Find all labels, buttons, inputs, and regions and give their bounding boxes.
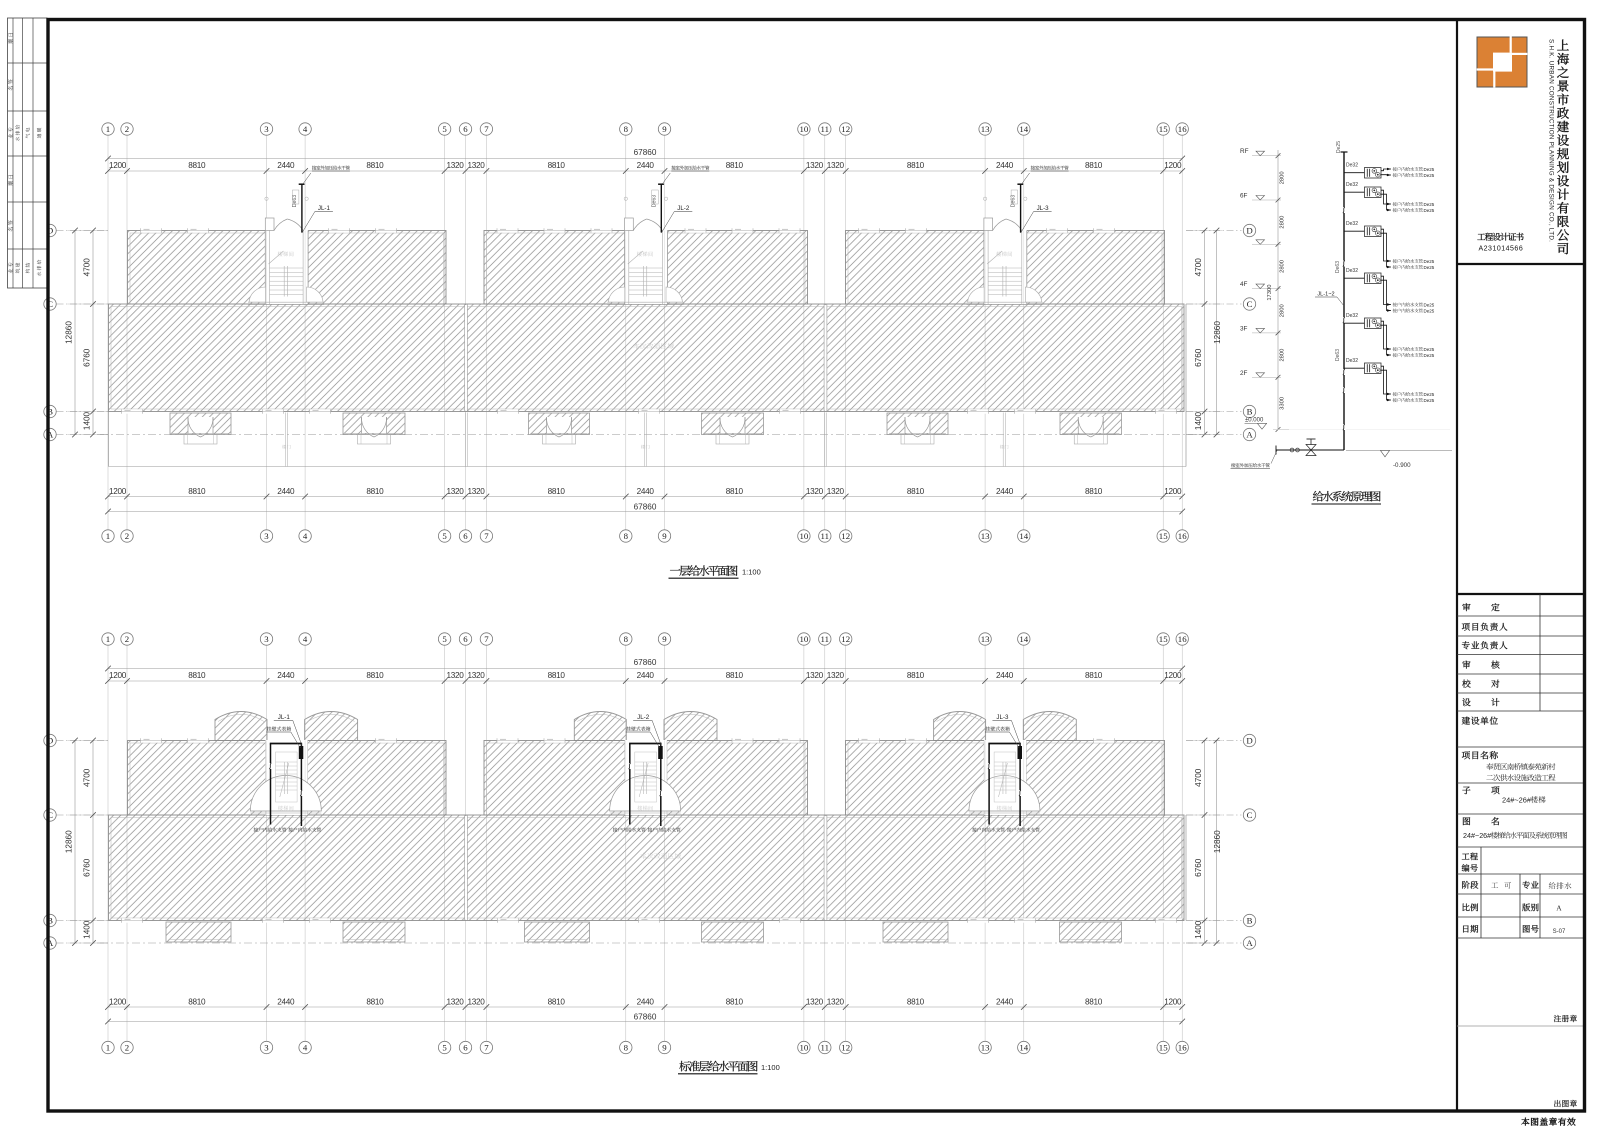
svg-text:B: B: [1247, 916, 1253, 926]
svg-text:1320: 1320: [447, 161, 465, 170]
svg-text:10: 10: [800, 1043, 809, 1053]
svg-text:24#~26#: 24#~26#: [1502, 796, 1532, 805]
svg-text:De25: De25: [1424, 173, 1435, 178]
svg-text:2F: 2F: [1240, 370, 1248, 377]
svg-text:4: 4: [303, 634, 308, 644]
svg-text:±0.000: ±0.000: [1245, 418, 1264, 424]
svg-text:C: C: [1247, 810, 1253, 820]
svg-text:8810: 8810: [188, 487, 206, 496]
svg-text:JL-2: JL-2: [677, 205, 690, 212]
svg-text:8: 8: [624, 1043, 629, 1053]
svg-text:6: 6: [463, 531, 468, 541]
svg-text:2800: 2800: [1280, 171, 1286, 184]
svg-text:7: 7: [484, 1043, 489, 1053]
svg-text:S-07: S-07: [1553, 929, 1566, 935]
svg-text:8810: 8810: [726, 671, 744, 680]
svg-text:1320: 1320: [827, 998, 845, 1007]
svg-text:1: 1: [106, 1043, 110, 1053]
svg-text:De25: De25: [1424, 167, 1435, 172]
svg-text:12: 12: [841, 124, 850, 134]
svg-text:16: 16: [1178, 531, 1187, 541]
svg-text:D: D: [1246, 226, 1252, 236]
svg-text:2440: 2440: [277, 998, 295, 1007]
svg-text:De32: De32: [1346, 313, 1358, 319]
svg-text:12860: 12860: [65, 321, 74, 344]
svg-text:1400: 1400: [1194, 920, 1203, 939]
svg-text:De63: De63: [651, 195, 657, 208]
svg-text:8810: 8810: [548, 487, 566, 496]
svg-text:11: 11: [821, 531, 829, 541]
svg-text:De25: De25: [1424, 302, 1435, 307]
svg-text:15: 15: [1159, 634, 1168, 644]
svg-text:De25: De25: [1424, 202, 1435, 207]
svg-text:2440: 2440: [996, 671, 1014, 680]
svg-text:1320: 1320: [467, 671, 485, 680]
svg-text:JL-2: JL-2: [637, 714, 650, 721]
svg-text:24#~26#: 24#~26#: [1463, 831, 1491, 840]
svg-text:14: 14: [1019, 531, 1028, 541]
svg-text:6760: 6760: [83, 348, 92, 367]
svg-text:15: 15: [1159, 124, 1168, 134]
svg-text:1200: 1200: [1164, 161, 1182, 170]
svg-text:A: A: [1246, 938, 1253, 948]
svg-text:2440: 2440: [637, 671, 655, 680]
svg-text:1200: 1200: [109, 161, 127, 170]
svg-text:67860: 67860: [634, 503, 657, 512]
svg-text:6760: 6760: [83, 858, 92, 877]
svg-text:9: 9: [662, 1043, 667, 1053]
svg-text:S.H.K. URBAN CONSTRUCTION PLAN: S.H.K. URBAN CONSTRUCTION PLANNING & DES…: [1548, 39, 1555, 242]
svg-text:3: 3: [264, 1043, 269, 1053]
svg-text:JL-1~2: JL-1~2: [1317, 292, 1334, 298]
svg-text:1200: 1200: [1164, 998, 1182, 1007]
svg-text:1200: 1200: [1164, 671, 1182, 680]
svg-text:16: 16: [1178, 634, 1187, 644]
svg-text:2: 2: [125, 531, 129, 541]
svg-text:2440: 2440: [637, 161, 655, 170]
svg-text:De25: De25: [1424, 308, 1435, 313]
svg-text:De25: De25: [1424, 353, 1435, 358]
svg-text:2440: 2440: [996, 998, 1014, 1007]
svg-text:5: 5: [442, 531, 447, 541]
svg-text:8810: 8810: [907, 161, 925, 170]
svg-text:12: 12: [841, 531, 850, 541]
svg-text:14: 14: [1019, 124, 1028, 134]
svg-text:De32: De32: [1346, 221, 1358, 227]
svg-text:3: 3: [264, 531, 269, 541]
svg-text:8810: 8810: [726, 487, 744, 496]
svg-text:1320: 1320: [447, 671, 465, 680]
svg-text:De25: De25: [1424, 259, 1435, 264]
svg-text:8810: 8810: [188, 998, 206, 1007]
svg-text:1320: 1320: [447, 487, 465, 496]
svg-text:1320: 1320: [467, 487, 485, 496]
svg-text:1200: 1200: [1164, 487, 1182, 496]
svg-text:7: 7: [484, 531, 489, 541]
svg-text:4: 4: [303, 124, 308, 134]
svg-text:8810: 8810: [1085, 998, 1103, 1007]
svg-text:8810: 8810: [726, 998, 744, 1007]
svg-text:8810: 8810: [726, 161, 744, 170]
svg-text:D: D: [1246, 736, 1252, 746]
svg-text:JL-1: JL-1: [318, 205, 331, 212]
svg-text:1200: 1200: [109, 998, 127, 1007]
svg-text:13: 13: [981, 634, 990, 644]
svg-text:1320: 1320: [827, 671, 845, 680]
svg-text:A: A: [1556, 904, 1562, 913]
svg-text:1320: 1320: [806, 998, 824, 1007]
svg-text:10: 10: [800, 531, 809, 541]
svg-text:De63: De63: [292, 195, 298, 208]
svg-text:9: 9: [662, 531, 667, 541]
svg-text:17300: 17300: [1267, 285, 1273, 301]
svg-text:12860: 12860: [1213, 321, 1222, 344]
svg-text:De25: De25: [1424, 347, 1435, 352]
svg-text:1320: 1320: [806, 161, 824, 170]
svg-text:6: 6: [463, 124, 468, 134]
svg-text:1400: 1400: [83, 920, 92, 939]
svg-text:7: 7: [484, 124, 489, 134]
svg-text:De25: De25: [1424, 265, 1435, 270]
svg-text:2440: 2440: [277, 487, 295, 496]
svg-text:8810: 8810: [907, 998, 925, 1007]
svg-text:2440: 2440: [277, 671, 295, 680]
svg-text:8810: 8810: [366, 487, 384, 496]
svg-text:11: 11: [821, 124, 829, 134]
svg-text:8810: 8810: [366, 161, 384, 170]
svg-text:11: 11: [821, 1043, 829, 1053]
svg-text:1320: 1320: [806, 671, 824, 680]
svg-text:13: 13: [981, 124, 990, 134]
svg-text:16: 16: [1178, 124, 1187, 134]
svg-text:4700: 4700: [83, 258, 92, 277]
svg-text:1:100: 1:100: [742, 568, 761, 577]
svg-text:16: 16: [1178, 1043, 1187, 1053]
svg-text:5: 5: [442, 124, 447, 134]
svg-text:1320: 1320: [467, 161, 485, 170]
svg-text:1320: 1320: [806, 487, 824, 496]
svg-text:8: 8: [624, 531, 629, 541]
svg-text:1320: 1320: [447, 998, 465, 1007]
svg-text:1400: 1400: [1194, 411, 1203, 430]
svg-text:1: 1: [106, 531, 110, 541]
svg-text:7: 7: [484, 634, 489, 644]
svg-text:6: 6: [463, 1043, 468, 1053]
svg-text:De32: De32: [1346, 182, 1358, 188]
svg-text:1200: 1200: [109, 671, 127, 680]
svg-text:1320: 1320: [827, 487, 845, 496]
svg-text:67860: 67860: [634, 658, 657, 667]
svg-text:4: 4: [303, 531, 308, 541]
svg-text:8810: 8810: [907, 671, 925, 680]
svg-text:6F: 6F: [1240, 193, 1248, 200]
svg-text:5: 5: [442, 634, 447, 644]
svg-text:2440: 2440: [996, 161, 1014, 170]
svg-text:8810: 8810: [1085, 671, 1103, 680]
svg-text:2800: 2800: [1280, 304, 1286, 317]
svg-text:JL-3: JL-3: [996, 714, 1009, 721]
svg-text:De32: De32: [1346, 358, 1358, 364]
svg-text:3: 3: [264, 634, 269, 644]
svg-text:8810: 8810: [548, 161, 566, 170]
svg-text:8810: 8810: [1085, 161, 1103, 170]
svg-text:2800: 2800: [1280, 349, 1286, 362]
svg-text:6760: 6760: [1194, 348, 1203, 367]
svg-text:JL-3: JL-3: [1037, 205, 1050, 212]
svg-text:2800: 2800: [1280, 216, 1286, 229]
svg-text:8: 8: [624, 634, 629, 644]
svg-text:15: 15: [1159, 1043, 1168, 1053]
svg-text:8810: 8810: [907, 487, 925, 496]
svg-text:A: A: [1246, 430, 1253, 440]
svg-text:12860: 12860: [65, 830, 74, 853]
svg-text:10: 10: [800, 124, 809, 134]
svg-text:De32: De32: [1346, 268, 1358, 274]
svg-text:12860: 12860: [1213, 830, 1222, 853]
svg-text:1200: 1200: [109, 487, 127, 496]
svg-text:De63: De63: [1335, 349, 1341, 361]
svg-text:De63: De63: [1011, 195, 1017, 208]
svg-text:4: 4: [303, 1043, 308, 1053]
svg-text:4700: 4700: [1194, 768, 1203, 787]
svg-text:3300: 3300: [1280, 397, 1286, 410]
svg-text:2440: 2440: [637, 998, 655, 1007]
svg-text:6760: 6760: [1194, 858, 1203, 877]
svg-text:1400: 1400: [83, 411, 92, 430]
svg-text:3F: 3F: [1240, 325, 1248, 332]
svg-text:De25: De25: [1424, 208, 1435, 213]
svg-text:12: 12: [841, 1043, 850, 1053]
svg-text:B: B: [1247, 407, 1253, 417]
svg-text:De25: De25: [1424, 392, 1435, 397]
svg-text:8810: 8810: [188, 671, 206, 680]
svg-text:1: 1: [106, 634, 110, 644]
svg-text:10: 10: [800, 634, 809, 644]
svg-text:4700: 4700: [1194, 258, 1203, 277]
svg-text:2: 2: [125, 634, 129, 644]
svg-text:8810: 8810: [548, 671, 566, 680]
svg-text:67860: 67860: [634, 1013, 657, 1022]
svg-text:1: 1: [106, 124, 110, 134]
svg-text:De25: De25: [1336, 141, 1342, 153]
svg-text:6: 6: [463, 634, 468, 644]
svg-text:2: 2: [125, 1043, 129, 1053]
svg-text:9: 9: [662, 124, 667, 134]
svg-text:15: 15: [1159, 531, 1168, 541]
svg-text:11: 11: [821, 634, 829, 644]
svg-text:1:100: 1:100: [761, 1063, 780, 1072]
svg-text:C: C: [1247, 299, 1253, 309]
svg-text:2440: 2440: [277, 161, 295, 170]
svg-text:4F: 4F: [1240, 281, 1248, 288]
svg-text:JL-1: JL-1: [278, 714, 291, 721]
svg-text:8810: 8810: [366, 671, 384, 680]
svg-text:5: 5: [442, 1043, 447, 1053]
svg-text:67860: 67860: [634, 148, 657, 157]
svg-text:8810: 8810: [366, 998, 384, 1007]
svg-text:1320: 1320: [467, 998, 485, 1007]
svg-text:14: 14: [1019, 1043, 1028, 1053]
svg-text:1320: 1320: [827, 161, 845, 170]
svg-text:8810: 8810: [188, 161, 206, 170]
svg-text:9: 9: [662, 634, 667, 644]
svg-text:2440: 2440: [637, 487, 655, 496]
svg-text:13: 13: [981, 1043, 990, 1053]
svg-text:2800: 2800: [1280, 260, 1286, 273]
svg-text:14: 14: [1019, 634, 1028, 644]
svg-text:RF: RF: [1240, 148, 1249, 155]
svg-text:2440: 2440: [996, 487, 1014, 496]
svg-text:De63: De63: [1335, 261, 1341, 273]
svg-text:12: 12: [841, 634, 850, 644]
svg-text:13: 13: [981, 531, 990, 541]
svg-text:De25: De25: [1424, 398, 1435, 403]
svg-text:-0.900: -0.900: [1393, 462, 1411, 469]
svg-text:4700: 4700: [83, 768, 92, 787]
svg-text:8: 8: [624, 124, 629, 134]
svg-text:8810: 8810: [1085, 487, 1103, 496]
svg-text:De32: De32: [1346, 163, 1358, 169]
svg-text:3: 3: [264, 124, 269, 134]
svg-text:8810: 8810: [548, 998, 566, 1007]
svg-text:2: 2: [125, 124, 129, 134]
svg-text:A231014566: A231014566: [1479, 246, 1524, 253]
